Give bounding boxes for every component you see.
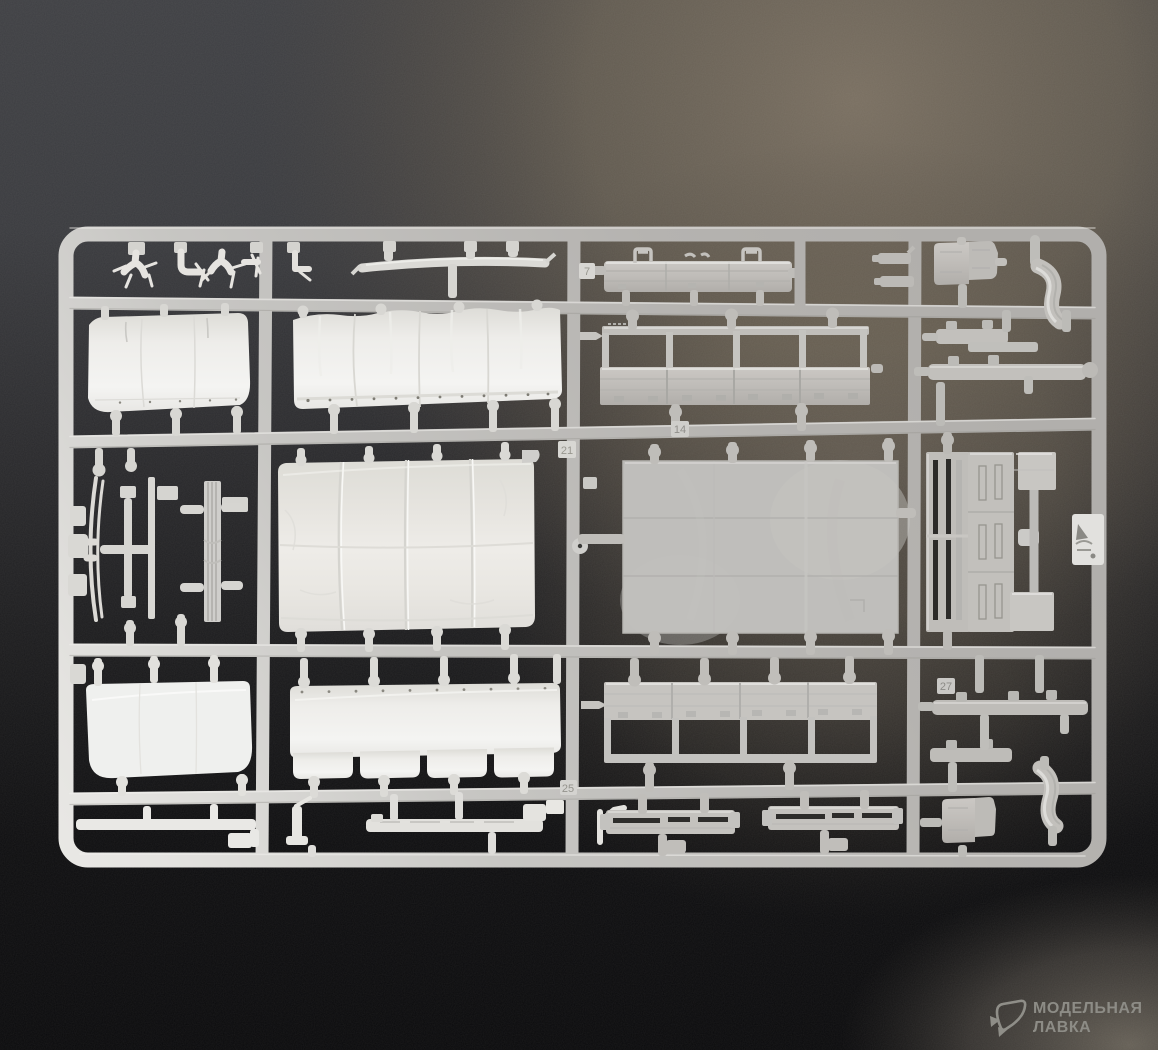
svg-text:ЛАВКА: ЛАВКА	[1033, 1019, 1091, 1036]
svg-text:14: 14	[674, 424, 686, 436]
svg-text:27: 27	[940, 681, 952, 693]
svg-text:МОДЕЛЬНАЯ: МОДЕЛЬНАЯ	[1033, 1000, 1142, 1017]
svg-text:21: 21	[561, 445, 573, 457]
svg-text:25: 25	[562, 783, 574, 795]
svg-text:7: 7	[584, 266, 590, 278]
